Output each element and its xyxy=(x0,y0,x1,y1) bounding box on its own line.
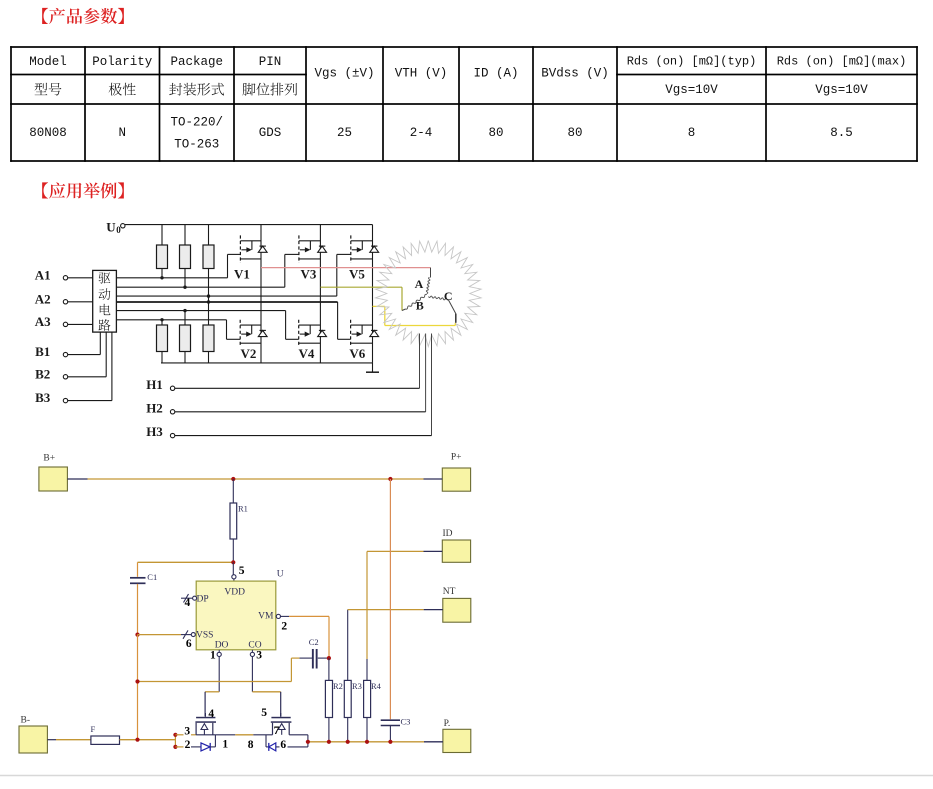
svg-text:VTH (V): VTH (V) xyxy=(395,66,448,80)
svg-text:Rds (on) [mΩ](typ): Rds (on) [mΩ](typ) xyxy=(627,55,757,69)
svg-text:H3: H3 xyxy=(146,424,163,439)
svg-text:DO: DO xyxy=(215,641,229,651)
svg-text:B+: B+ xyxy=(43,454,55,464)
svg-text:A2: A2 xyxy=(35,291,51,306)
svg-text:C2: C2 xyxy=(309,637,319,647)
svg-text:4: 4 xyxy=(208,708,214,720)
svg-text:R1: R1 xyxy=(238,503,248,513)
svg-text:C3: C3 xyxy=(401,716,411,726)
svg-text:R4: R4 xyxy=(371,681,382,691)
svg-text:3: 3 xyxy=(184,726,190,738)
svg-text:2: 2 xyxy=(281,621,287,633)
svg-text:B: B xyxy=(416,299,424,313)
svg-text:5: 5 xyxy=(239,565,245,577)
svg-text:U: U xyxy=(277,570,284,580)
svg-text:4: 4 xyxy=(185,597,191,609)
svg-text:VM: VM xyxy=(258,612,274,622)
svg-text:F: F xyxy=(91,724,96,734)
svg-text:H1: H1 xyxy=(146,377,163,392)
svg-text:A1: A1 xyxy=(35,267,51,282)
svg-text:TO-263: TO-263 xyxy=(174,137,219,151)
svg-text:V3: V3 xyxy=(301,266,317,281)
svg-text:2: 2 xyxy=(185,739,191,751)
svg-text:V2: V2 xyxy=(241,346,257,361)
svg-text:H2: H2 xyxy=(146,400,163,415)
svg-text:PIN: PIN xyxy=(259,55,282,69)
svg-text:8: 8 xyxy=(688,126,696,140)
svg-text:80N08: 80N08 xyxy=(29,126,67,140)
svg-text:B1: B1 xyxy=(35,344,50,359)
svg-text:DP: DP xyxy=(197,595,209,605)
svg-text:B-: B- xyxy=(21,716,31,726)
svg-text:N: N xyxy=(118,126,126,140)
svg-text:BVdss (V): BVdss (V) xyxy=(541,66,609,80)
svg-text:R2: R2 xyxy=(333,681,343,691)
svg-text:C: C xyxy=(444,289,453,303)
svg-text:7: 7 xyxy=(274,725,280,737)
svg-text:6: 6 xyxy=(280,739,286,751)
svg-text:R3: R3 xyxy=(352,681,362,691)
svg-text:C1: C1 xyxy=(147,572,157,582)
svg-text:Model: Model xyxy=(29,55,67,69)
svg-text:A: A xyxy=(415,277,424,291)
svg-text:V4: V4 xyxy=(299,346,315,361)
svg-text:Vgs=10V: Vgs=10V xyxy=(815,83,868,97)
svg-text:NT: NT xyxy=(443,587,456,597)
svg-text:GDS: GDS xyxy=(259,126,282,140)
svg-text:8: 8 xyxy=(248,739,254,751)
svg-text:ID: ID xyxy=(443,529,453,539)
svg-text:1: 1 xyxy=(210,650,216,662)
svg-text:5: 5 xyxy=(261,707,267,719)
svg-text:1: 1 xyxy=(222,738,228,750)
svg-text:P.: P. xyxy=(444,719,451,729)
svg-text:25: 25 xyxy=(337,126,352,140)
svg-text:80: 80 xyxy=(567,126,582,140)
svg-text:VDD: VDD xyxy=(224,587,245,597)
svg-text:V6: V6 xyxy=(349,346,365,361)
svg-text:8.5: 8.5 xyxy=(830,126,853,140)
svg-text:V1: V1 xyxy=(234,266,250,281)
svg-text:P+: P+ xyxy=(451,453,462,463)
svg-text:Vgs (±V): Vgs (±V) xyxy=(314,66,374,80)
svg-text:2-4: 2-4 xyxy=(410,126,433,140)
svg-text:80: 80 xyxy=(488,126,503,140)
svg-text:A3: A3 xyxy=(35,314,51,329)
svg-text:B2: B2 xyxy=(35,366,50,381)
svg-text:TO-220/: TO-220/ xyxy=(171,115,224,129)
svg-text:U: U xyxy=(106,219,116,234)
svg-text:ID (A): ID (A) xyxy=(473,66,518,80)
svg-text:V5: V5 xyxy=(349,266,365,281)
svg-text:Package: Package xyxy=(171,55,224,69)
svg-text:Vgs=10V: Vgs=10V xyxy=(665,83,718,97)
svg-text:3: 3 xyxy=(256,650,262,662)
svg-text:B3: B3 xyxy=(35,390,51,405)
svg-text:6: 6 xyxy=(186,638,192,650)
svg-text:VSS: VSS xyxy=(196,631,213,641)
svg-text:Polarity: Polarity xyxy=(92,55,153,69)
svg-text:Rds (on) [mΩ](max): Rds (on) [mΩ](max) xyxy=(777,55,907,69)
